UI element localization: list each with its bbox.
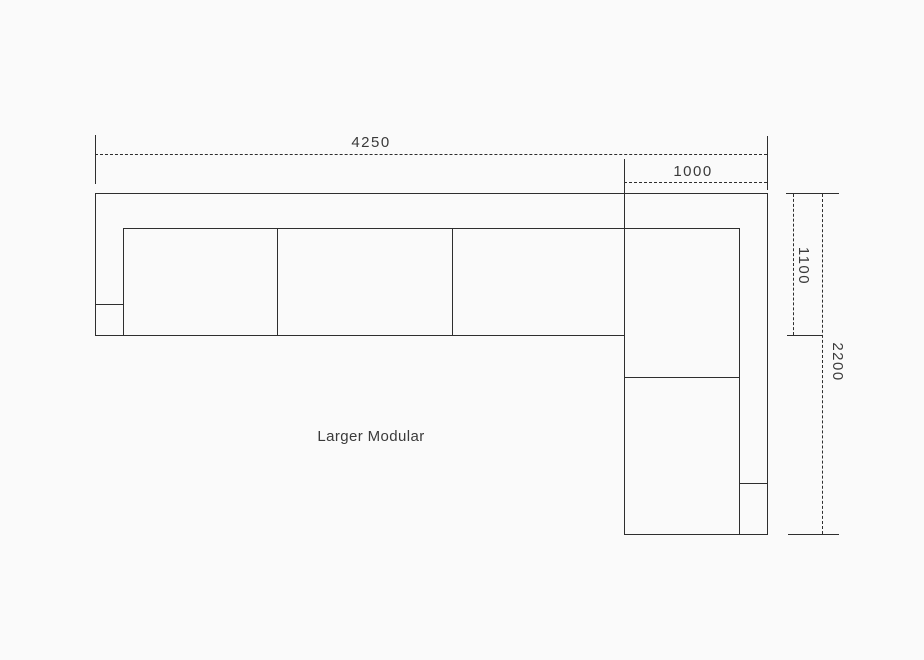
dim-total-width-dashed-line (95, 154, 767, 155)
dim-corner-width-tick-left (624, 159, 625, 193)
sofa-dimension-diagram: 4250 1000 1100 2200 Larger Modular (0, 0, 924, 660)
dim-depth-tick-middle (787, 335, 822, 336)
corner-seat-divider (624, 377, 739, 378)
dim-total-width-tick-right (767, 136, 768, 190)
dim-depth-tick-bottom (788, 534, 839, 535)
right-armrest-divider (739, 483, 767, 484)
sofa-outline-left-edge (95, 193, 96, 335)
seat-left-line (123, 228, 124, 335)
left-armrest-divider (95, 304, 123, 305)
sofa-corner-divider-line (624, 193, 625, 535)
cushion-divider-2 (452, 228, 453, 335)
seat-right-line (739, 228, 740, 535)
product-label: Larger Modular (271, 427, 471, 447)
dim-total-width-tick-left (95, 135, 96, 184)
dim-seat-depth-label: 1100 (794, 221, 812, 311)
sofa-outline-bottom-edge-right-arm (624, 534, 768, 535)
sofa-outline-right-edge (767, 193, 768, 535)
dim-corner-width-dashed-line (624, 182, 767, 183)
dim-total-depth-label: 2200 (828, 317, 846, 407)
dim-corner-width-label: 1000 (648, 163, 738, 181)
dim-total-width-label: 4250 (326, 134, 416, 152)
seat-back-line (123, 228, 739, 229)
sofa-outline-top-edge (95, 193, 768, 194)
sofa-outline-bottom-edge-left-arm (95, 335, 625, 336)
cushion-divider-1 (277, 228, 278, 335)
dim-total-depth-dashed-line (822, 194, 823, 534)
